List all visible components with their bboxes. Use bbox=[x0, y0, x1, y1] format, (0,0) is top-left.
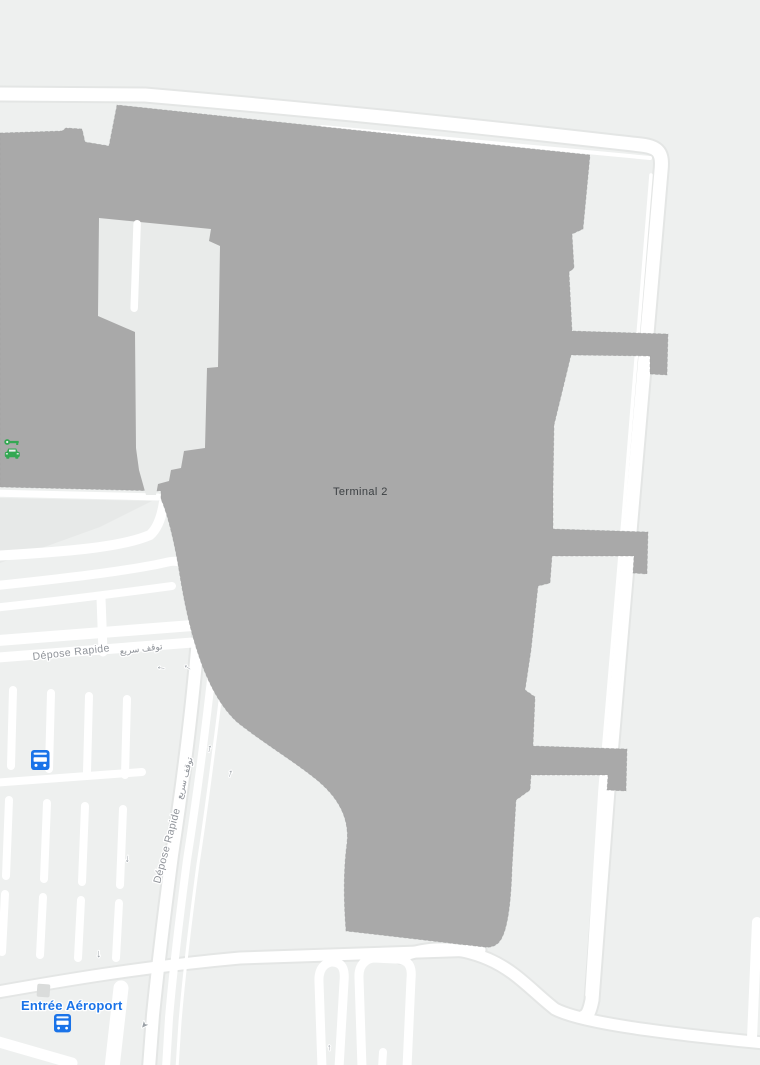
bus-station-icon[interactable] bbox=[54, 1014, 71, 1032]
airport-entrance-label[interactable]: Entrée Aéroport bbox=[21, 998, 123, 1013]
arrow-left-icon: ← bbox=[155, 660, 168, 673]
map-viewport[interactable]: ← ← ↑ ↑ ↓ ↓ ➤ ↑ Termi bbox=[0, 0, 760, 1065]
bus-station-icon[interactable] bbox=[31, 750, 50, 770]
arrow-up-icon: ↑ bbox=[327, 1042, 332, 1052]
road-bus-loop-stub bbox=[382, 1052, 383, 1065]
arrow-down-icon: ↓ bbox=[96, 948, 102, 960]
road-right-edge bbox=[752, 922, 757, 1038]
terminal-label[interactable]: Terminal 2 bbox=[333, 486, 388, 498]
road-terminal-front bbox=[0, 493, 158, 497]
building-poi-icon bbox=[37, 984, 51, 998]
map-canvas[interactable]: ← ← ↑ ↑ ↓ ↓ ➤ ↑ Termi bbox=[0, 0, 760, 1065]
